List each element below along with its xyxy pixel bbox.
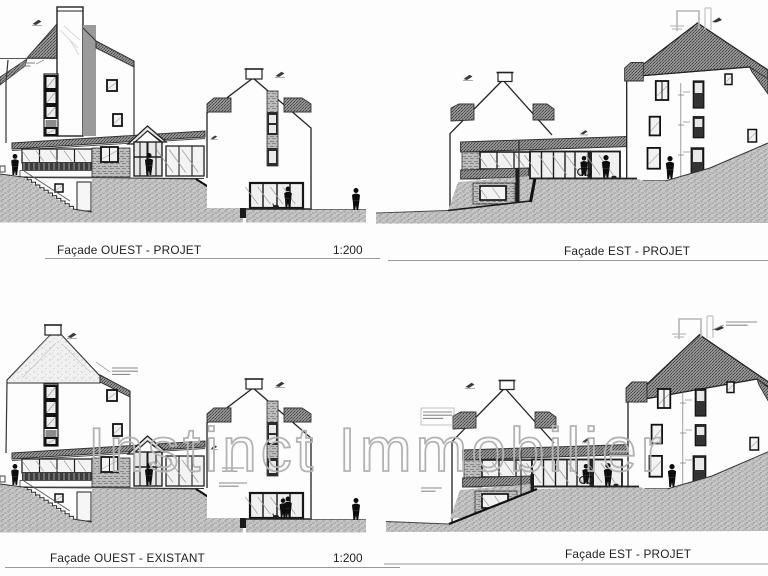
svg-text:Façade OUEST - PROJET: Façade OUEST - PROJET [57, 243, 201, 257]
svg-text:Façade OUEST - EXISTANT: Façade OUEST - EXISTANT [50, 551, 205, 565]
svg-text:Instinct Immobilier: Instinct Immobilier [88, 416, 665, 485]
svg-text:1:200: 1:200 [333, 243, 363, 257]
svg-text:1:200: 1:200 [333, 551, 363, 565]
svg-text:Façade EST - PROJET: Façade EST - PROJET [565, 547, 691, 561]
svg-text:Façade EST - PROJET: Façade EST - PROJET [564, 244, 690, 258]
